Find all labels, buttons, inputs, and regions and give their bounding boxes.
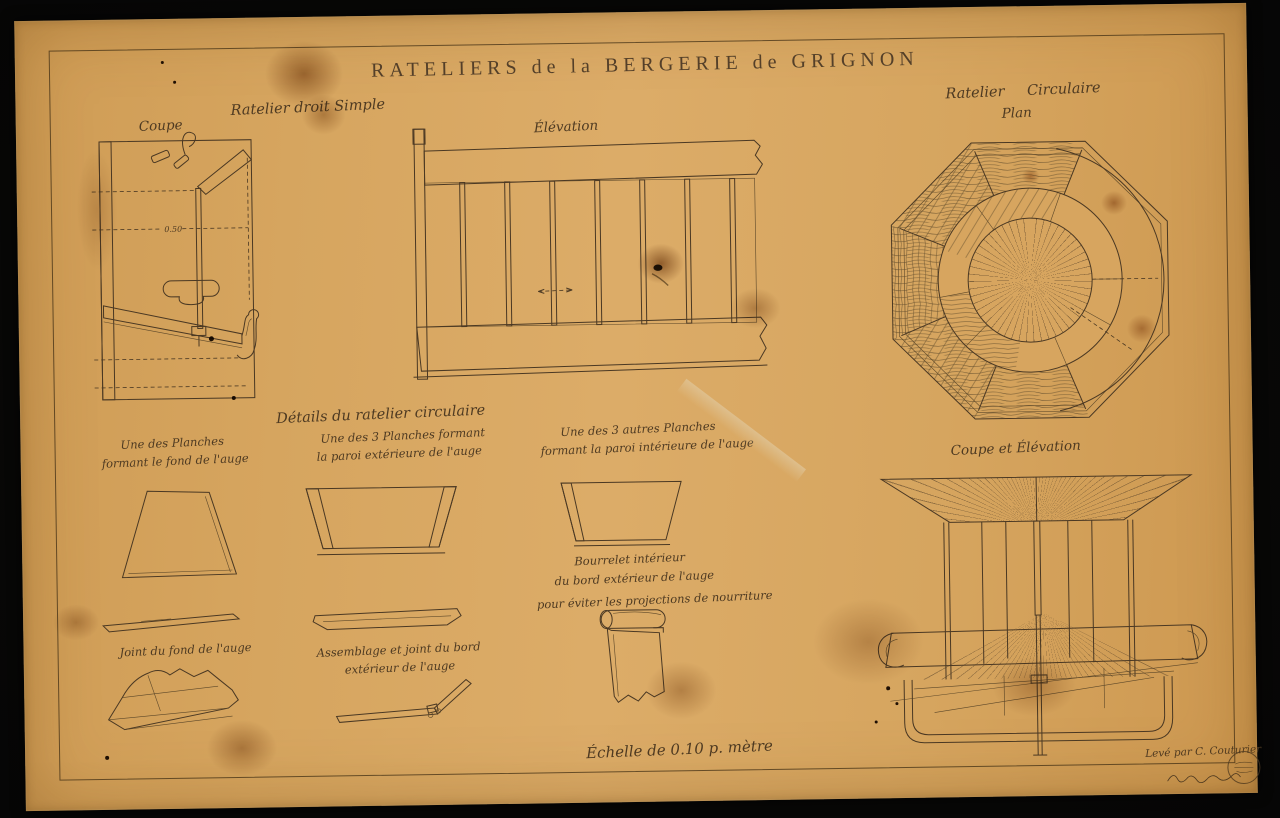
bottom-joint-perspective — [100, 658, 253, 738]
circular-plan-drawing — [872, 128, 1188, 437]
drawing-sheet: RATELIERS de la BERGERIE de GRIGNON Rate… — [14, 3, 1258, 811]
ink-speck — [895, 702, 898, 705]
coupe-drawing: 0.50 — [89, 128, 265, 413]
ink-speck — [173, 81, 176, 84]
ink-speck — [105, 756, 109, 760]
collection-stamp — [1227, 751, 1260, 784]
bottom-joint-board — [101, 612, 245, 636]
ink-speck — [209, 336, 214, 341]
outer-joint-board — [311, 607, 465, 637]
stamp-marks — [1228, 752, 1259, 783]
ink-speck — [161, 61, 164, 64]
outer-plank-drawing — [302, 485, 463, 561]
bourrelet-drawing — [589, 603, 687, 710]
circular-section-drawing — [871, 461, 1209, 766]
inner-plank-drawing — [557, 479, 688, 551]
svg-text:0.50: 0.50 — [164, 225, 182, 234]
scanned-drawing-stage: RATELIERS de la BERGERIE de GRIGNON Rate… — [0, 0, 1280, 818]
ink-speck — [875, 720, 878, 723]
ink-speck — [886, 686, 890, 690]
outer-joint-assembly — [330, 674, 483, 734]
bottom-plank-drawing — [119, 488, 240, 582]
label-plan: Plan — [1001, 105, 1032, 123]
elevation-drawing — [410, 122, 778, 387]
elevation-slats — [460, 179, 737, 327]
ink-speck — [232, 396, 236, 400]
